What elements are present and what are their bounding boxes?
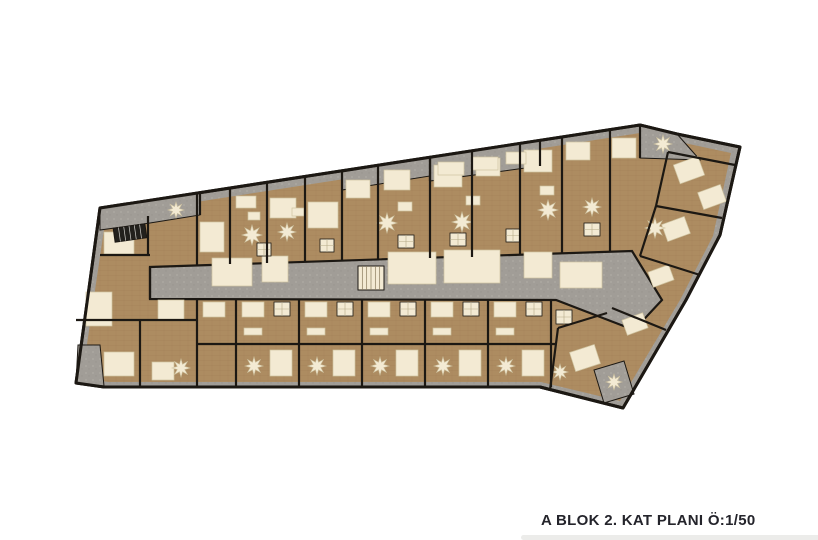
corridor-panel [524, 252, 552, 278]
furniture-item [244, 328, 262, 335]
corridor-panel [212, 258, 252, 286]
furniture-item [612, 138, 636, 158]
furniture-item [524, 150, 552, 172]
floor-plan-page: A BLOK 2. KAT PLANI Ö:1/50 [0, 0, 818, 540]
staircase [358, 266, 384, 290]
star-table [308, 357, 326, 375]
furniture-item [236, 196, 256, 208]
furniture-item [566, 142, 590, 160]
star-table [242, 225, 262, 245]
furniture-item [242, 302, 264, 317]
star-table [583, 198, 601, 216]
caption-underline-bar [521, 535, 818, 540]
furniture-item [308, 202, 338, 228]
furniture-item [398, 202, 412, 211]
furniture-item [506, 152, 526, 164]
furniture-item [333, 350, 355, 376]
furniture-item [292, 208, 304, 216]
furniture-item [431, 302, 453, 317]
star-table [377, 213, 397, 233]
furniture-item [104, 352, 134, 376]
star-table [278, 223, 296, 241]
furniture-item [459, 350, 481, 376]
furniture-item [396, 350, 418, 376]
furniture-item [494, 302, 516, 317]
floor-plan-svg [0, 0, 818, 540]
star-table [172, 359, 190, 377]
star-table [245, 357, 263, 375]
furniture-item [522, 350, 544, 376]
furniture-item [270, 350, 292, 376]
furniture-item [200, 222, 224, 252]
star-table [538, 200, 558, 220]
furniture-item [438, 162, 464, 175]
furniture-item [433, 328, 451, 335]
furniture-item [384, 170, 410, 190]
star-table [654, 135, 672, 153]
furniture-item [152, 362, 174, 380]
furniture-item [158, 300, 184, 320]
star-table [606, 374, 622, 390]
furniture-item [472, 157, 498, 170]
furniture-item [307, 328, 325, 335]
furniture-item [496, 328, 514, 335]
corridor-panel [560, 262, 602, 288]
star-table [371, 357, 389, 375]
star-table [168, 202, 184, 218]
star-table [452, 212, 472, 232]
star-table [497, 357, 515, 375]
furniture-item [305, 302, 327, 317]
corridor-panel [388, 252, 436, 284]
furniture-item [248, 212, 260, 220]
star-table [552, 364, 568, 380]
furniture-item [346, 180, 370, 198]
furniture-item [203, 302, 225, 317]
furniture-item [370, 328, 388, 335]
furniture-item [540, 186, 554, 195]
star-table [434, 357, 452, 375]
furniture-item [368, 302, 390, 317]
plan-caption: A BLOK 2. KAT PLANI Ö:1/50 [541, 512, 756, 529]
